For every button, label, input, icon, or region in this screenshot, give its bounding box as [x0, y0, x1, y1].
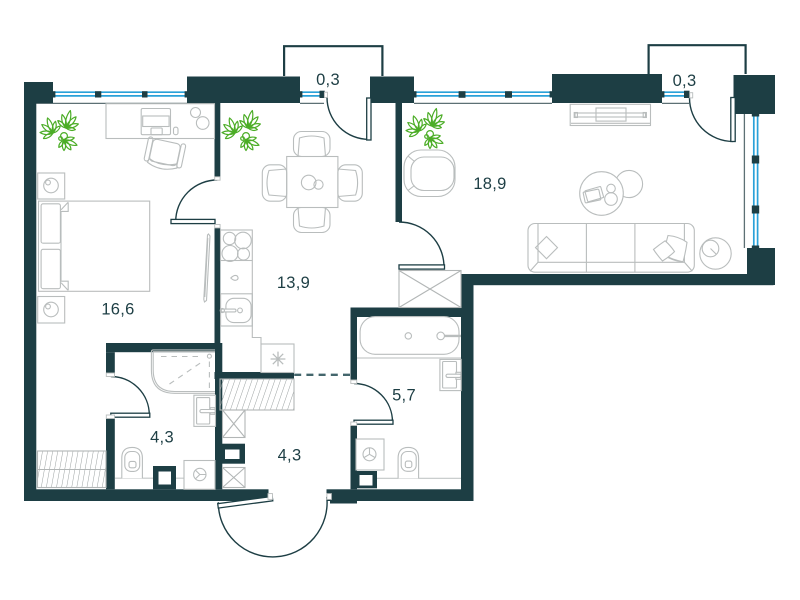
- svg-text:16,6: 16,6: [101, 301, 134, 319]
- svg-text:0,3: 0,3: [316, 71, 340, 89]
- svg-text:5,7: 5,7: [392, 387, 416, 405]
- svg-text:13,9: 13,9: [277, 274, 310, 292]
- svg-text:4,3: 4,3: [278, 447, 302, 465]
- svg-text:0,3: 0,3: [673, 72, 697, 90]
- svg-text:4,3: 4,3: [150, 429, 174, 447]
- svg-text:18,9: 18,9: [473, 175, 506, 193]
